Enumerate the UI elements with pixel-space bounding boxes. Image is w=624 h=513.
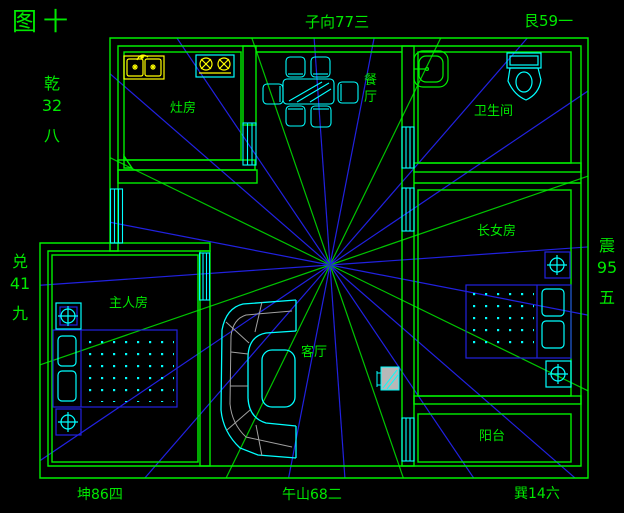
room-label-living: 客厅: [301, 346, 327, 360]
floor-plan-svg: [0, 0, 624, 513]
window-hall-wall-upper: [402, 127, 414, 168]
room-label-master: 主人房: [109, 297, 148, 311]
room-label-dining: 餐厅: [364, 73, 379, 107]
kitchen-sink-icon: [124, 55, 164, 79]
kitchen-right-wall: [243, 46, 256, 125]
sofa-icon: [221, 300, 296, 458]
ceiling-lamp-icon: [56, 409, 81, 435]
window-master-wall: [200, 253, 210, 300]
daughter-room-bottom-wall: [414, 396, 581, 404]
window-kitchen-wall: [243, 123, 256, 165]
orientation-top-right: 艮59一: [524, 13, 573, 30]
room-label-kitchen: 灶房: [170, 102, 196, 116]
side-annotation-left-upper: 乾 32 八: [40, 70, 64, 148]
tv-icon: [377, 367, 399, 390]
room-label-balcony: 阳台: [479, 430, 505, 444]
coffee-table-icon: [262, 350, 295, 407]
compass-ray: [330, 0, 593, 265]
stove-icon: [196, 55, 234, 77]
room-label-bathroom: 卫生间: [474, 105, 513, 119]
master-bed-icon: [53, 330, 177, 407]
orientation-bottom-left: 坤86四: [77, 488, 123, 503]
chair-icon: [338, 82, 358, 103]
compass-ray: [330, 0, 444, 265]
dining-table-icon: [283, 79, 334, 104]
toilet-icon: [507, 53, 541, 100]
bathroom-bottom-wall: [414, 163, 581, 172]
orientation-top-center: 子向77三: [305, 14, 369, 31]
side-annotation-left-lower: 兑 41 九: [8, 248, 32, 326]
orientation-bottom-center: 午山68二: [282, 488, 342, 503]
chair-icon: [311, 106, 331, 127]
chair-icon: [286, 57, 305, 77]
compass-ray: [330, 265, 372, 513]
room-label-eldest-daughter: 长女房: [477, 225, 516, 239]
window-balcony-wall: [402, 418, 414, 461]
ceiling-lamp-icon: [56, 303, 81, 329]
window-left-wall: [111, 189, 123, 243]
cad-canvas: 图十 子向77三 艮59一 坤86四 午山68二 巽14六 乾 32 八 兑 4…: [0, 0, 624, 513]
chair-icon: [286, 106, 305, 126]
compass-ray: [288, 0, 330, 265]
hall-right-wall: [402, 46, 414, 466]
ceiling-lamp-icon: [546, 361, 571, 387]
dining-chairs: [263, 57, 358, 127]
drawing-title: 图十: [12, 8, 74, 36]
chair-icon: [311, 57, 330, 77]
windows: [111, 123, 415, 461]
ceiling-lamp-icon: [545, 252, 570, 278]
orientation-bottom-right: 巽14六: [514, 487, 560, 502]
step-wall: [110, 243, 210, 251]
master-right-wall: [200, 251, 210, 466]
kitchen-bottom-wall: [118, 160, 255, 170]
compass-ray: [0, 151, 330, 265]
daughter-bed-icon: [466, 285, 571, 358]
side-annotation-right: 震 95 五: [595, 232, 619, 310]
compass-ray: [135, 0, 330, 265]
